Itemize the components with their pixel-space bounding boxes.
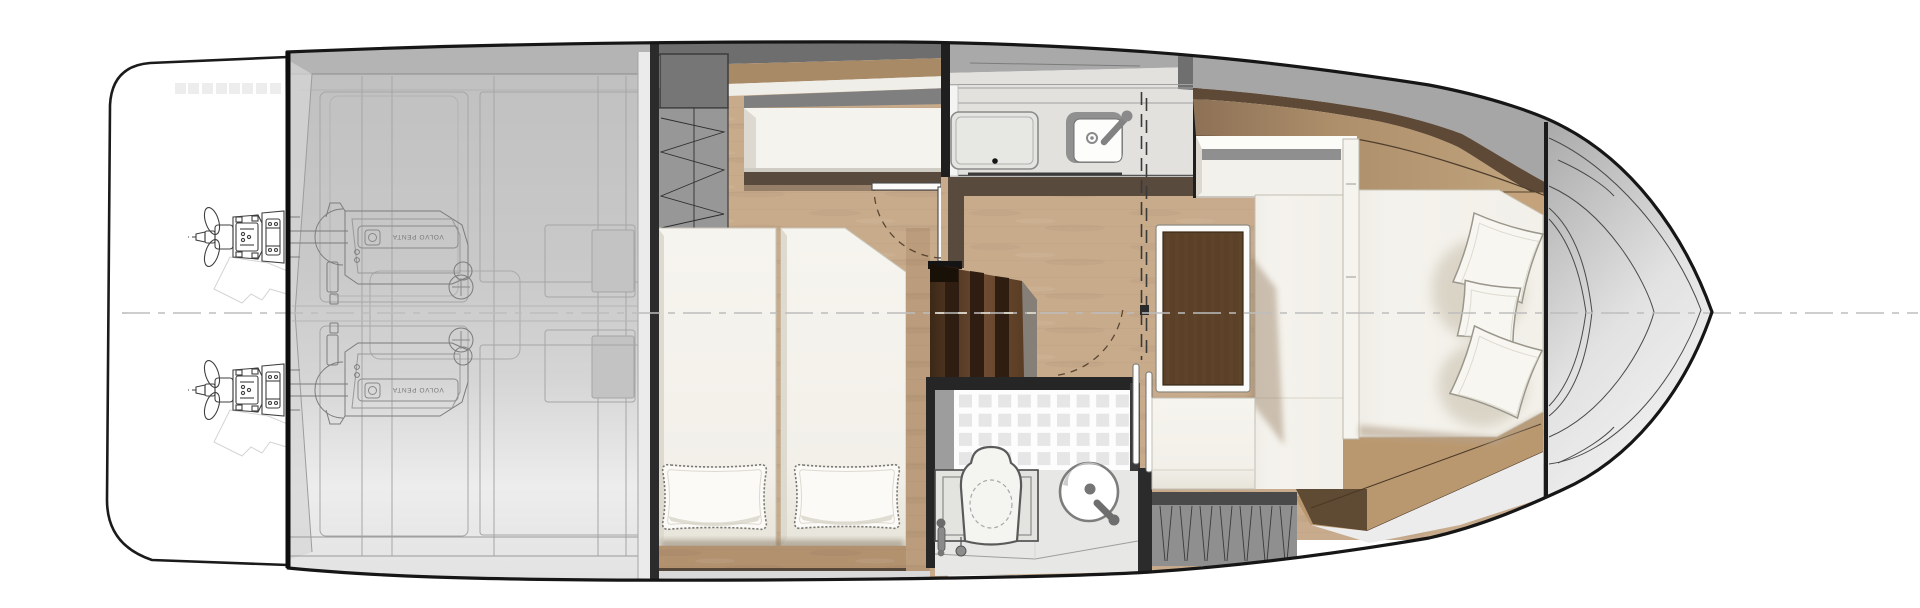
svg-text:VOLVO PENTA: VOLVO PENTA [392, 233, 444, 240]
svg-text:VOLVO PENTA: VOLVO PENTA [392, 386, 444, 393]
